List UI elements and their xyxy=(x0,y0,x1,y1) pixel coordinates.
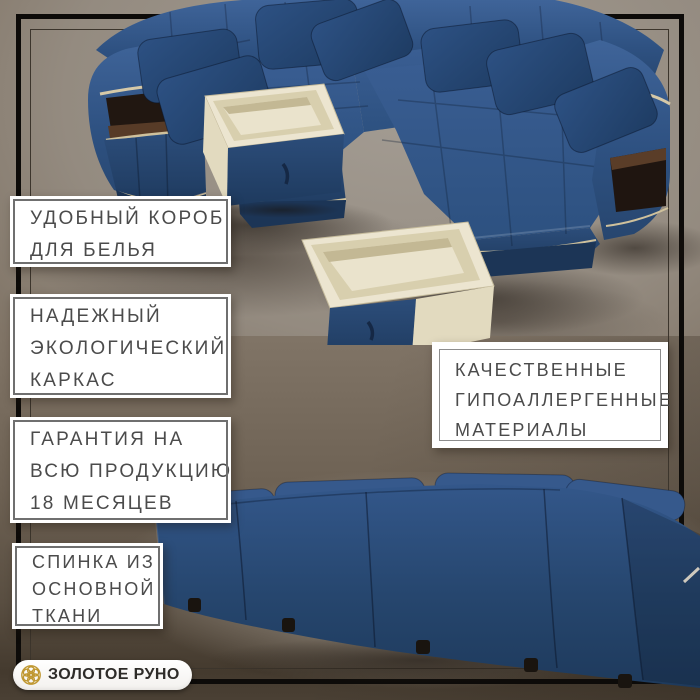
feature-line: 18 МЕСЯЦЕВ xyxy=(30,488,231,520)
feature-line: МАТЕРИАЛЫ xyxy=(455,415,668,445)
promo-banner: УДОБНЫЙ КОРОБ ДЛЯ БЕЛЬЯ НАДЕЖНЫЙ ЭКОЛОГИ… xyxy=(0,0,700,700)
feature-line: НАДЕЖНЫЙ xyxy=(30,301,231,333)
golden-fleece-rosette-icon xyxy=(20,664,42,686)
feature-line: ТКАНИ xyxy=(32,603,163,630)
feature-line: ДЛЯ БЕЛЬЯ xyxy=(30,235,231,267)
feature-box-linen-storage: УДОБНЫЙ КОРОБ ДЛЯ БЕЛЬЯ xyxy=(10,196,231,267)
feature-box-warranty: ГАРАНТИЯ НА ВСЮ ПРОДУКЦИЮ 18 МЕСЯЦЕВ xyxy=(10,417,231,523)
feature-line: ГАРАНТИЯ НА xyxy=(30,424,231,456)
brand-logo: ЗОЛОТОЕ РУНО xyxy=(13,660,192,690)
feature-line: КАРКАС xyxy=(30,365,231,397)
feature-line: ЭКОЛОГИЧЕСКИЙ xyxy=(30,333,231,365)
feature-box-backrest-fabric: СПИНКА ИЗ ОСНОВНОЙ ТКАНИ xyxy=(12,543,163,629)
feature-box-materials: КАЧЕСТВЕННЫЕ ГИПОАЛЛЕРГЕННЫЕ МАТЕРИАЛЫ xyxy=(432,342,668,448)
feature-line: ГИПОАЛЛЕРГЕННЫЕ xyxy=(455,385,668,415)
feature-line: ВСЮ ПРОДУКЦИЮ xyxy=(30,456,231,488)
feature-line: КАЧЕСТВЕННЫЕ xyxy=(455,355,668,385)
feature-box-eco-frame: НАДЕЖНЫЙ ЭКОЛОГИЧЕСКИЙ КАРКАС xyxy=(10,294,231,398)
feature-line: СПИНКА ИЗ xyxy=(32,549,163,576)
brand-name: ЗОЛОТОЕ РУНО xyxy=(48,666,180,684)
feature-line: ОСНОВНОЙ xyxy=(32,576,163,603)
feature-line: УДОБНЫЙ КОРОБ xyxy=(30,203,231,235)
